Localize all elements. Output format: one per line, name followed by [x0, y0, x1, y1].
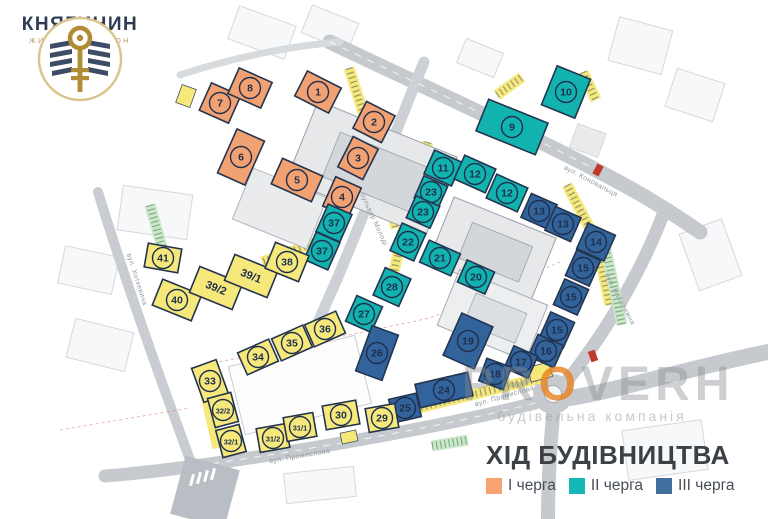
building-number: 15	[577, 262, 589, 274]
building-number: 5	[294, 174, 300, 186]
building-number: 31/1	[293, 423, 308, 432]
legend-label: І черга	[508, 477, 556, 495]
legend-item-1: І черга	[486, 477, 556, 495]
building-number: 22	[402, 236, 414, 248]
building-number: 6	[238, 151, 244, 163]
building-number: 38	[281, 256, 293, 268]
building-number: 20	[470, 271, 482, 283]
legend-swatch	[486, 478, 502, 494]
building-number: 32/1	[224, 437, 239, 446]
building-31/1: 31/1	[283, 413, 317, 442]
building-number: 4	[339, 191, 345, 203]
legend-items: І чергаІІ чергаІІІ черга	[486, 477, 748, 495]
building-number: 34	[252, 351, 264, 363]
legend-label: ІІ черга	[591, 477, 643, 495]
building-number: 37	[316, 245, 328, 257]
building-number: 31/2	[266, 434, 281, 443]
building-number: 40	[171, 294, 183, 306]
logo-emblem	[6, 12, 154, 106]
building-number: 32/2	[216, 406, 231, 415]
building-number: 3	[355, 152, 361, 164]
building-number: 2	[371, 116, 377, 128]
building-number: 15	[551, 324, 563, 336]
building-number: 41	[157, 252, 169, 264]
building-number: 33	[204, 375, 216, 387]
building-number: 7	[217, 97, 223, 109]
building-number: 24	[438, 384, 450, 396]
watermark-text: PROVERH	[462, 358, 734, 411]
legend-label: ІІІ черга	[678, 477, 734, 495]
building-number: 23	[425, 186, 437, 198]
building-number: 12	[469, 168, 481, 180]
building-number: 10	[560, 86, 572, 98]
building-number: 8	[247, 82, 253, 94]
building-number: 12	[501, 187, 513, 199]
construction-legend: ХІД БУДІВНИЦТВА І чергаІІ чергаІІІ черга	[486, 440, 748, 495]
building-number: 21	[434, 252, 446, 264]
legend-title: ХІД БУДІВНИЦТВА	[486, 440, 748, 471]
building-number: 11	[437, 162, 448, 174]
building-number: 19	[462, 335, 474, 347]
building-number: 16	[540, 345, 552, 357]
legend-item-3: ІІІ черга	[656, 477, 734, 495]
building-number: 25	[399, 402, 411, 414]
building-29: 29	[365, 404, 399, 433]
building-number: 9	[509, 121, 515, 133]
building-number: 29	[376, 412, 388, 424]
building-number: 13	[557, 218, 569, 230]
building-number: 1	[315, 86, 321, 98]
building-number: 37	[328, 217, 340, 229]
building-number: 26	[371, 347, 383, 359]
building-41: 41	[144, 243, 182, 273]
legend-item-2: ІІ черга	[569, 477, 643, 495]
building-number: 27	[358, 308, 370, 320]
building-number: 30	[335, 409, 347, 421]
logo: КНЯГИНИН ЖИТЛОВИЙ РАЙОН	[6, 12, 154, 45]
watermark-subtext: будівельна компанія	[497, 408, 686, 424]
building-30: 30	[322, 400, 360, 430]
building-number: 14	[590, 236, 602, 248]
legend-swatch	[569, 478, 585, 494]
building-number: 35	[286, 337, 298, 349]
building-number: 23	[417, 206, 429, 218]
legend-swatch	[656, 478, 672, 494]
building-number: 15	[565, 291, 577, 303]
site-plan-poster: 1234567891037371112122323222120282713131…	[0, 0, 768, 519]
building-number: 13	[533, 205, 545, 217]
building-number: 28	[386, 281, 398, 293]
building-number: 36	[319, 323, 331, 335]
